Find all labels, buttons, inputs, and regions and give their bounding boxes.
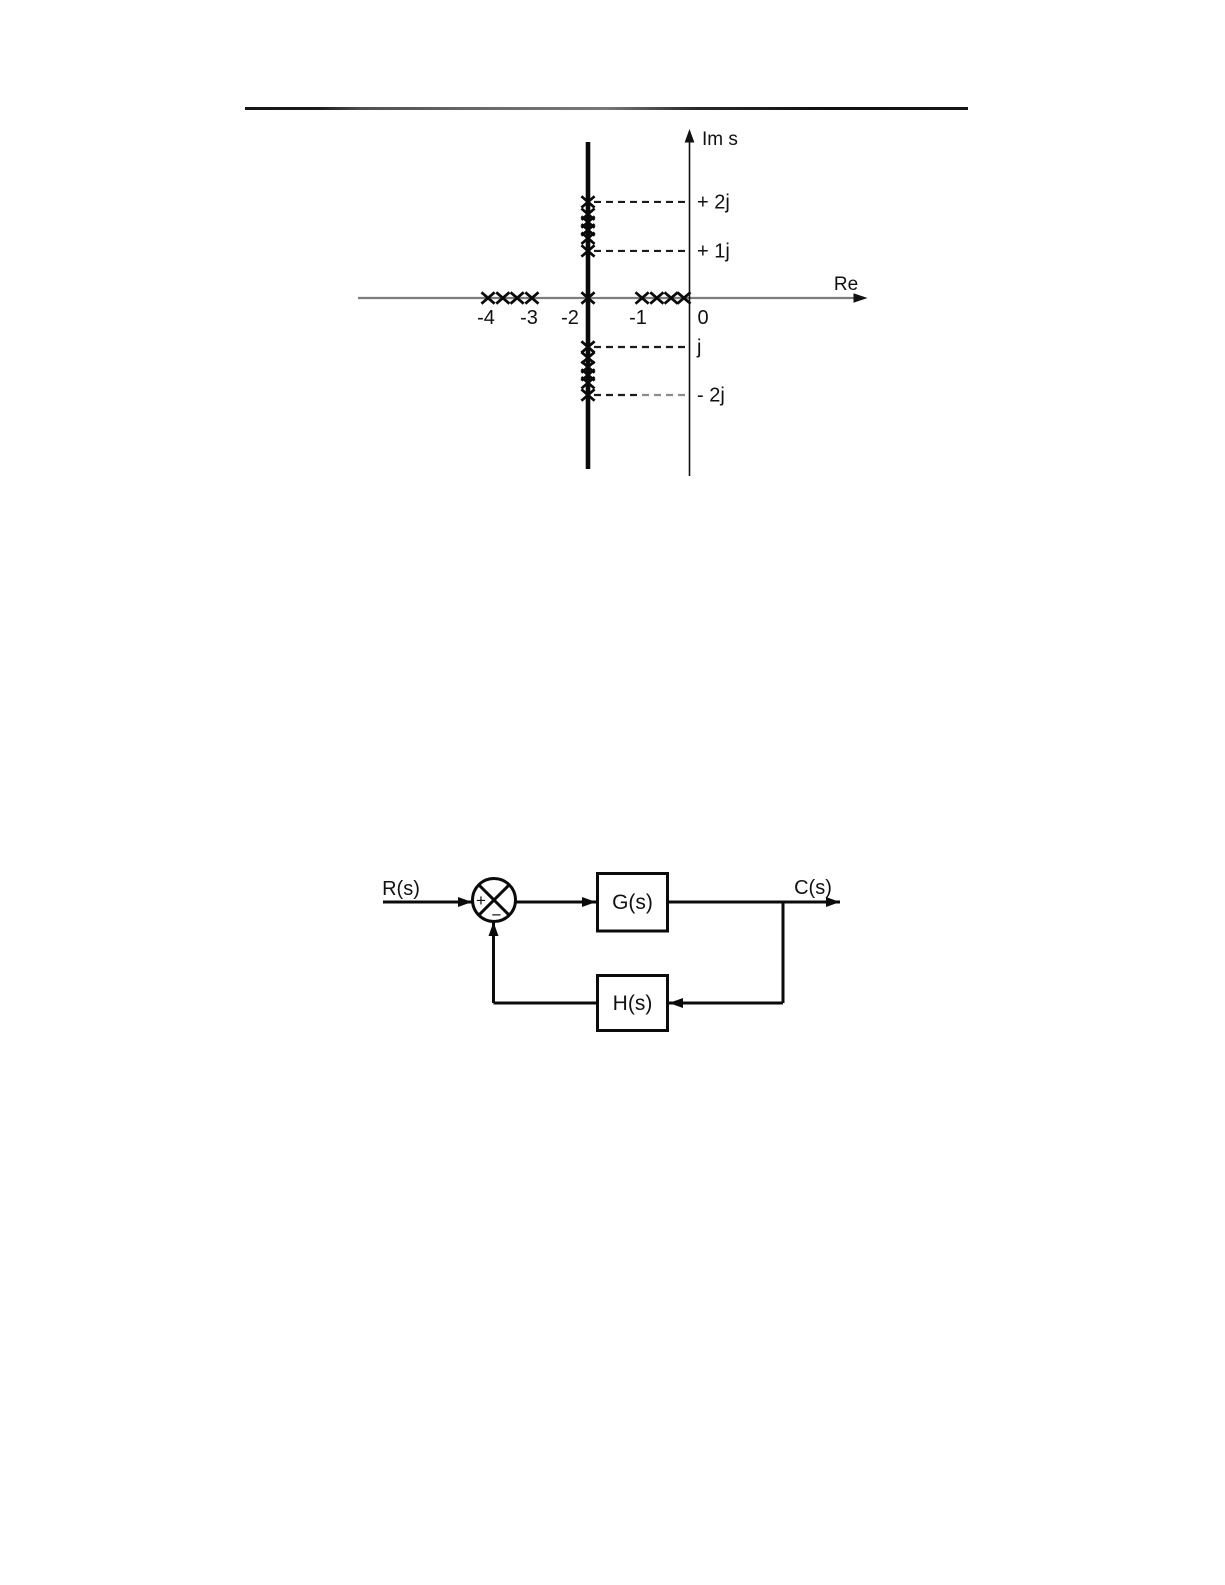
input-signal-label: R(s) [382, 878, 420, 900]
summing-plus-sign: + [476, 891, 486, 910]
guide-label: + 1j [697, 240, 730, 262]
forward-block-label: G(s) [612, 891, 653, 914]
document-page: Im s Re -4 -3 -2 -1 0 + 2j+ 1jj- 2j R(s)… [0, 0, 1225, 1585]
guide-label: - 2j [697, 385, 725, 407]
imaginary-axis-arrowhead-icon [685, 129, 695, 143]
tick-label-zero: 0 [697, 307, 708, 329]
feedback-block-diagram: R(s) + − G(s) C(s) H(s) [382, 874, 840, 1031]
s-plane-plot: Im s Re -4 -3 -2 -1 0 + 2j+ 1jj- 2j [358, 129, 868, 476]
tick-label-minus3: -3 [520, 307, 538, 329]
summing-minus-sign: − [492, 906, 502, 925]
tick-label-minus2: -2 [561, 307, 579, 329]
re-axis-label: Re [834, 274, 858, 295]
guide-label: + 2j [697, 191, 730, 213]
im-axis-label: Im s [702, 129, 738, 150]
figures-canvas: Im s Re -4 -3 -2 -1 0 + 2j+ 1jj- 2j R(s)… [0, 0, 1225, 1585]
guide-label: j [696, 337, 701, 359]
feedback-block-label: H(s) [613, 992, 653, 1015]
tick-label-minus4: -4 [477, 307, 495, 329]
output-signal-label: C(s) [794, 877, 832, 899]
tick-label-minus1: -1 [629, 307, 647, 329]
